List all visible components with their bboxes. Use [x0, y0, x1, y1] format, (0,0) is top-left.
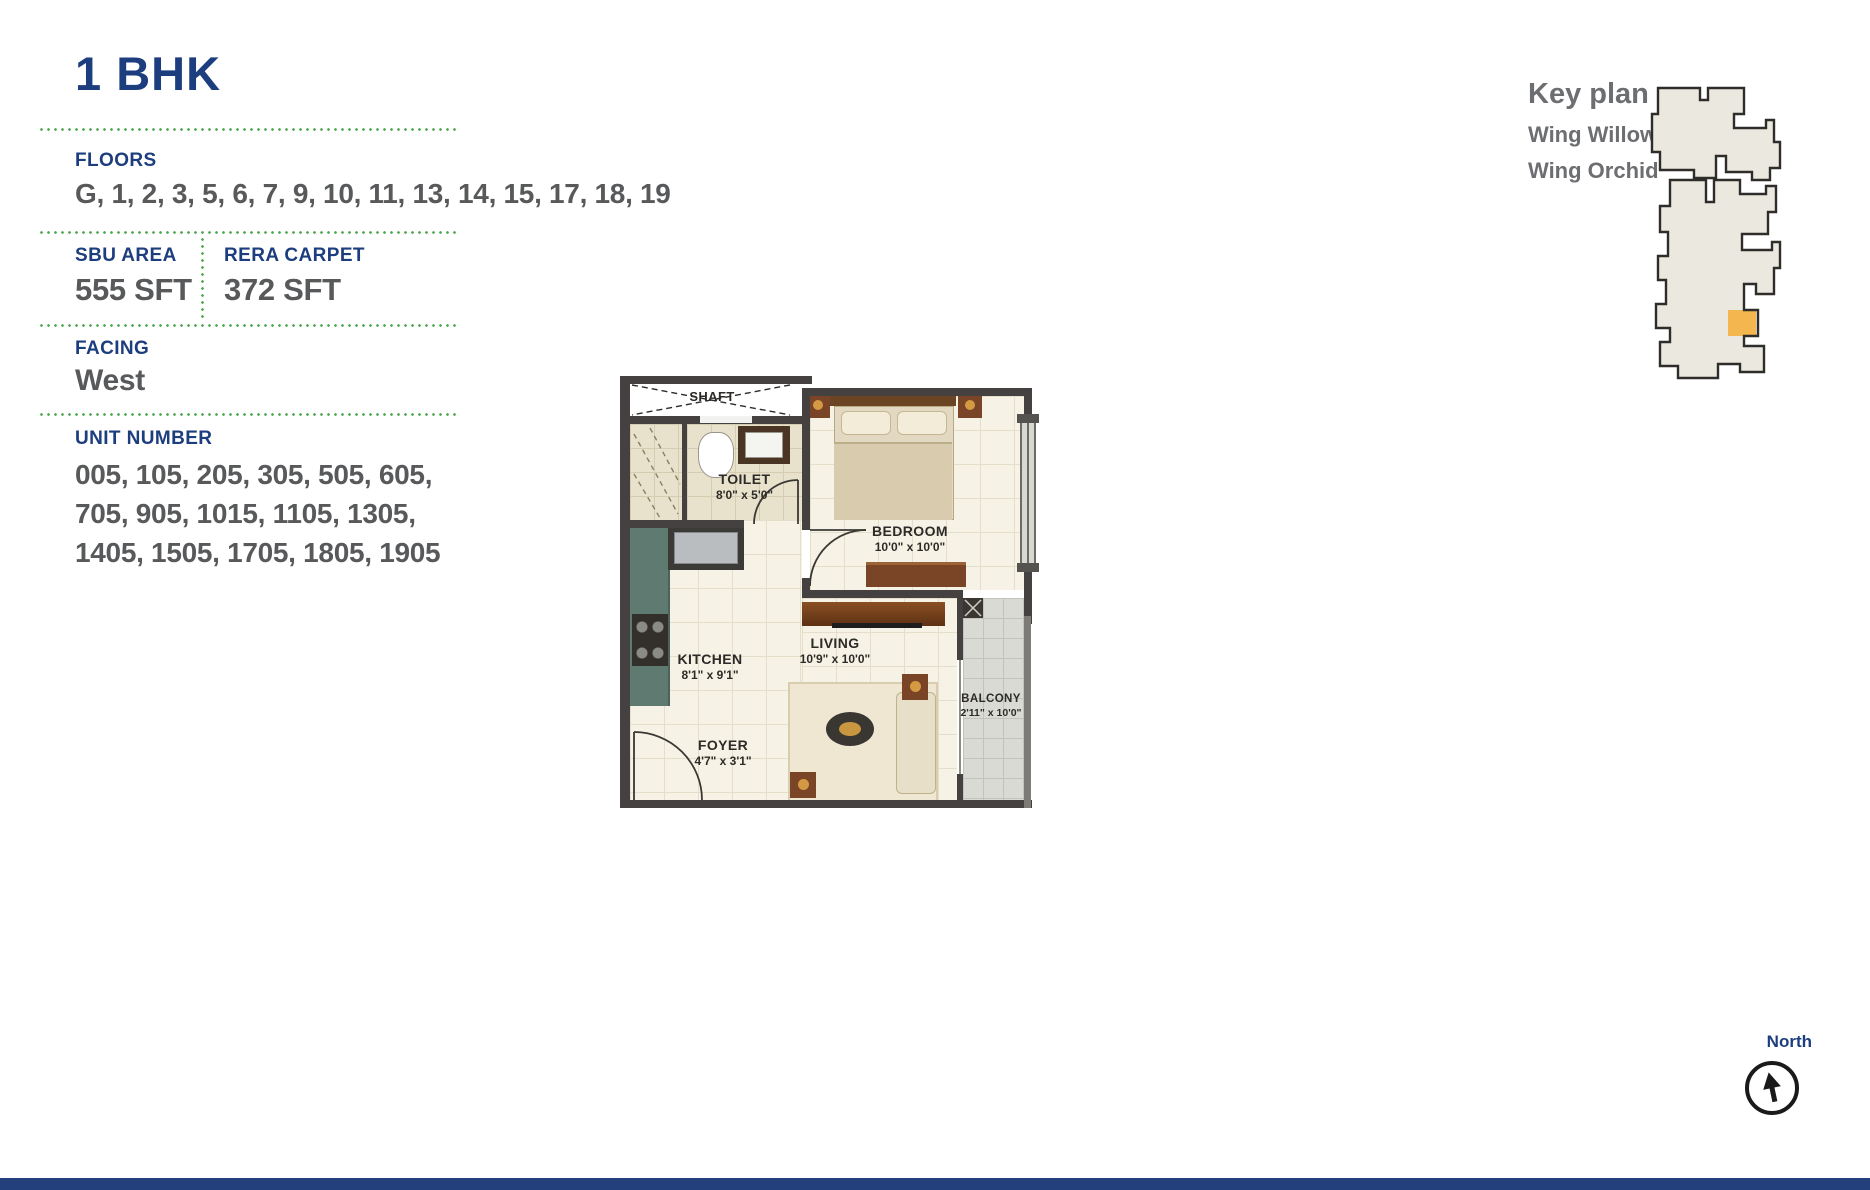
floors-label: FLOORS [75, 150, 157, 172]
wall [957, 598, 963, 660]
north-label: North [1746, 1032, 1812, 1052]
rera-carpet-value: 372 SFT [224, 272, 341, 308]
divider [40, 231, 460, 234]
divider-vertical [201, 238, 204, 322]
table-top-icon [839, 722, 861, 736]
unit-number-values: 005, 105, 205, 305, 505, 605, 705, 905, … [75, 455, 440, 572]
coffee-table [826, 712, 874, 746]
footer-bar [0, 1178, 1870, 1190]
window-icon [1020, 422, 1036, 564]
bed-headboard [830, 396, 956, 406]
highlighted-unit [1728, 310, 1756, 336]
sbu-area-label: SBU AREA [75, 245, 177, 267]
room-label-foyer: FOYER 4'7" x 3'1" [668, 736, 778, 770]
unit-number-line: 1405, 1505, 1705, 1805, 1905 [75, 533, 440, 572]
window-cap [1017, 414, 1039, 423]
brochure-page: 1 BHK FLOORS G, 1, 2, 3, 5, 6, 7, 9, 10,… [0, 0, 1870, 1190]
table-knob-icon [910, 681, 921, 692]
tv-icon [832, 623, 922, 628]
north-arrow-icon [1742, 1058, 1802, 1118]
facing-label: FACING [75, 338, 149, 360]
divider [40, 324, 460, 327]
window-cap [1017, 563, 1039, 572]
table-knob-icon [813, 400, 823, 410]
unit-number-line: 005, 105, 205, 305, 505, 605, [75, 455, 440, 494]
table-knob-icon [965, 400, 975, 410]
washbasin [745, 432, 783, 458]
wall [802, 388, 1032, 396]
side-table [902, 674, 928, 700]
key-plan-wing-2: Wing Orchid [1528, 158, 1659, 184]
pillow [897, 411, 947, 435]
wall [802, 590, 963, 598]
wall-vent [700, 416, 752, 423]
key-plan-title: Key plan [1528, 78, 1649, 111]
wall [630, 520, 744, 528]
wall [957, 774, 963, 800]
room-label-toilet: TOILET 8'0" x 5'0" [687, 470, 802, 504]
kitchen-sink [674, 532, 738, 564]
floor-plan: SHAFT TOILET 8'0" x 5'0" BEDROOM 10'0" x… [620, 376, 1044, 812]
page-title: 1 BHK [75, 46, 221, 101]
side-table [790, 772, 816, 798]
table-knob-icon [798, 779, 809, 790]
kitchen-sink-unit [668, 526, 744, 570]
room-label-shaft: SHAFT [650, 389, 774, 406]
facing-value: West [75, 364, 145, 398]
divider [40, 128, 460, 131]
unit-number-line: 705, 905, 1015, 1105, 1305, [75, 494, 440, 533]
sofa [896, 692, 936, 794]
room-label-living: LIVING 10'9" x 10'0" [770, 634, 900, 668]
wall [620, 376, 812, 384]
key-plan-building-outline [1648, 84, 1793, 386]
room-label-kitchen: KITCHEN 8'1" x 9'1" [648, 650, 772, 684]
wall [802, 388, 810, 530]
washbasin-cabinet [738, 426, 790, 464]
wall [620, 800, 1032, 808]
room-label-balcony: BALCONY 2'11" x 10'0" [948, 692, 1034, 721]
pillow [841, 411, 891, 435]
room-label-bedroom: BEDROOM 10'0" x 10'0" [840, 522, 980, 556]
utility-room [630, 424, 682, 520]
rera-carpet-label: RERA CARPET [224, 245, 365, 267]
wall [620, 376, 630, 808]
key-plan-wing-1: Wing Willow [1528, 122, 1657, 148]
divider [40, 413, 460, 416]
bed-blanket [834, 442, 952, 520]
unit-number-label: UNIT NUMBER [75, 428, 212, 450]
sbu-area-value: 555 SFT [75, 272, 192, 308]
floors-value: G, 1, 2, 3, 5, 6, 7, 9, 10, 11, 13, 14, … [75, 178, 671, 210]
duct-box [963, 598, 983, 618]
bed-bench [866, 562, 966, 587]
